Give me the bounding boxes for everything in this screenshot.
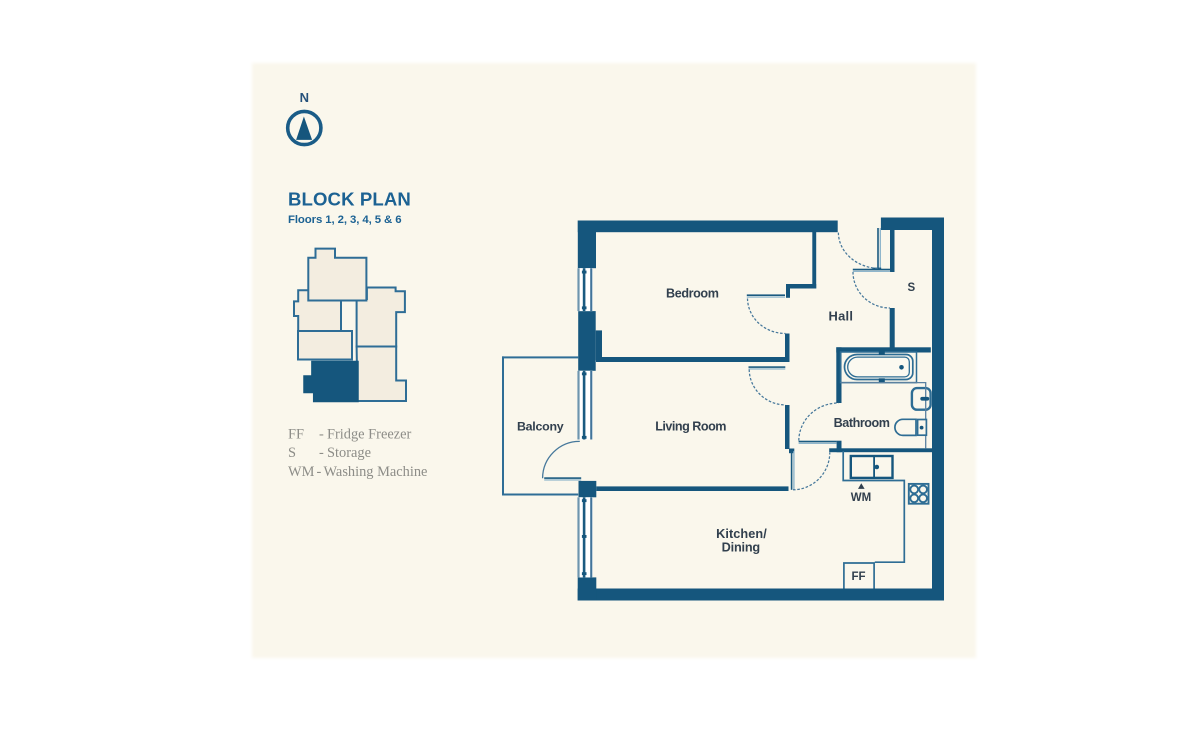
svg-text:-: - xyxy=(319,427,324,443)
svg-text:Balcony: Balcony xyxy=(517,420,564,434)
svg-text:Floors 1, 2, 3, 4, 5 & 6: Floors 1, 2, 3, 4, 5 & 6 xyxy=(288,214,401,226)
svg-text:BLOCK PLAN: BLOCK PLAN xyxy=(288,188,411,209)
svg-text:Bathroom: Bathroom xyxy=(834,416,890,430)
svg-text:Washing Machine: Washing Machine xyxy=(324,464,428,480)
svg-text:Fridge Freezer: Fridge Freezer xyxy=(327,427,412,443)
svg-text:Living Room: Living Room xyxy=(655,420,726,434)
svg-text:Bedroom: Bedroom xyxy=(666,286,719,300)
svg-text:S: S xyxy=(907,282,915,294)
svg-text:Hall: Hall xyxy=(828,308,853,323)
svg-text:FF: FF xyxy=(851,571,865,583)
svg-text:WM: WM xyxy=(851,492,871,504)
svg-text:N: N xyxy=(300,90,309,105)
svg-text:Kitchen/: Kitchen/ xyxy=(716,527,767,541)
svg-text:WM: WM xyxy=(288,464,315,480)
svg-text:-: - xyxy=(317,464,322,480)
svg-text:FF: FF xyxy=(288,427,304,443)
svg-text:-: - xyxy=(319,445,324,461)
svg-text:Dining: Dining xyxy=(722,541,760,555)
svg-text:S: S xyxy=(288,445,296,461)
svg-text:Storage: Storage xyxy=(327,445,371,461)
